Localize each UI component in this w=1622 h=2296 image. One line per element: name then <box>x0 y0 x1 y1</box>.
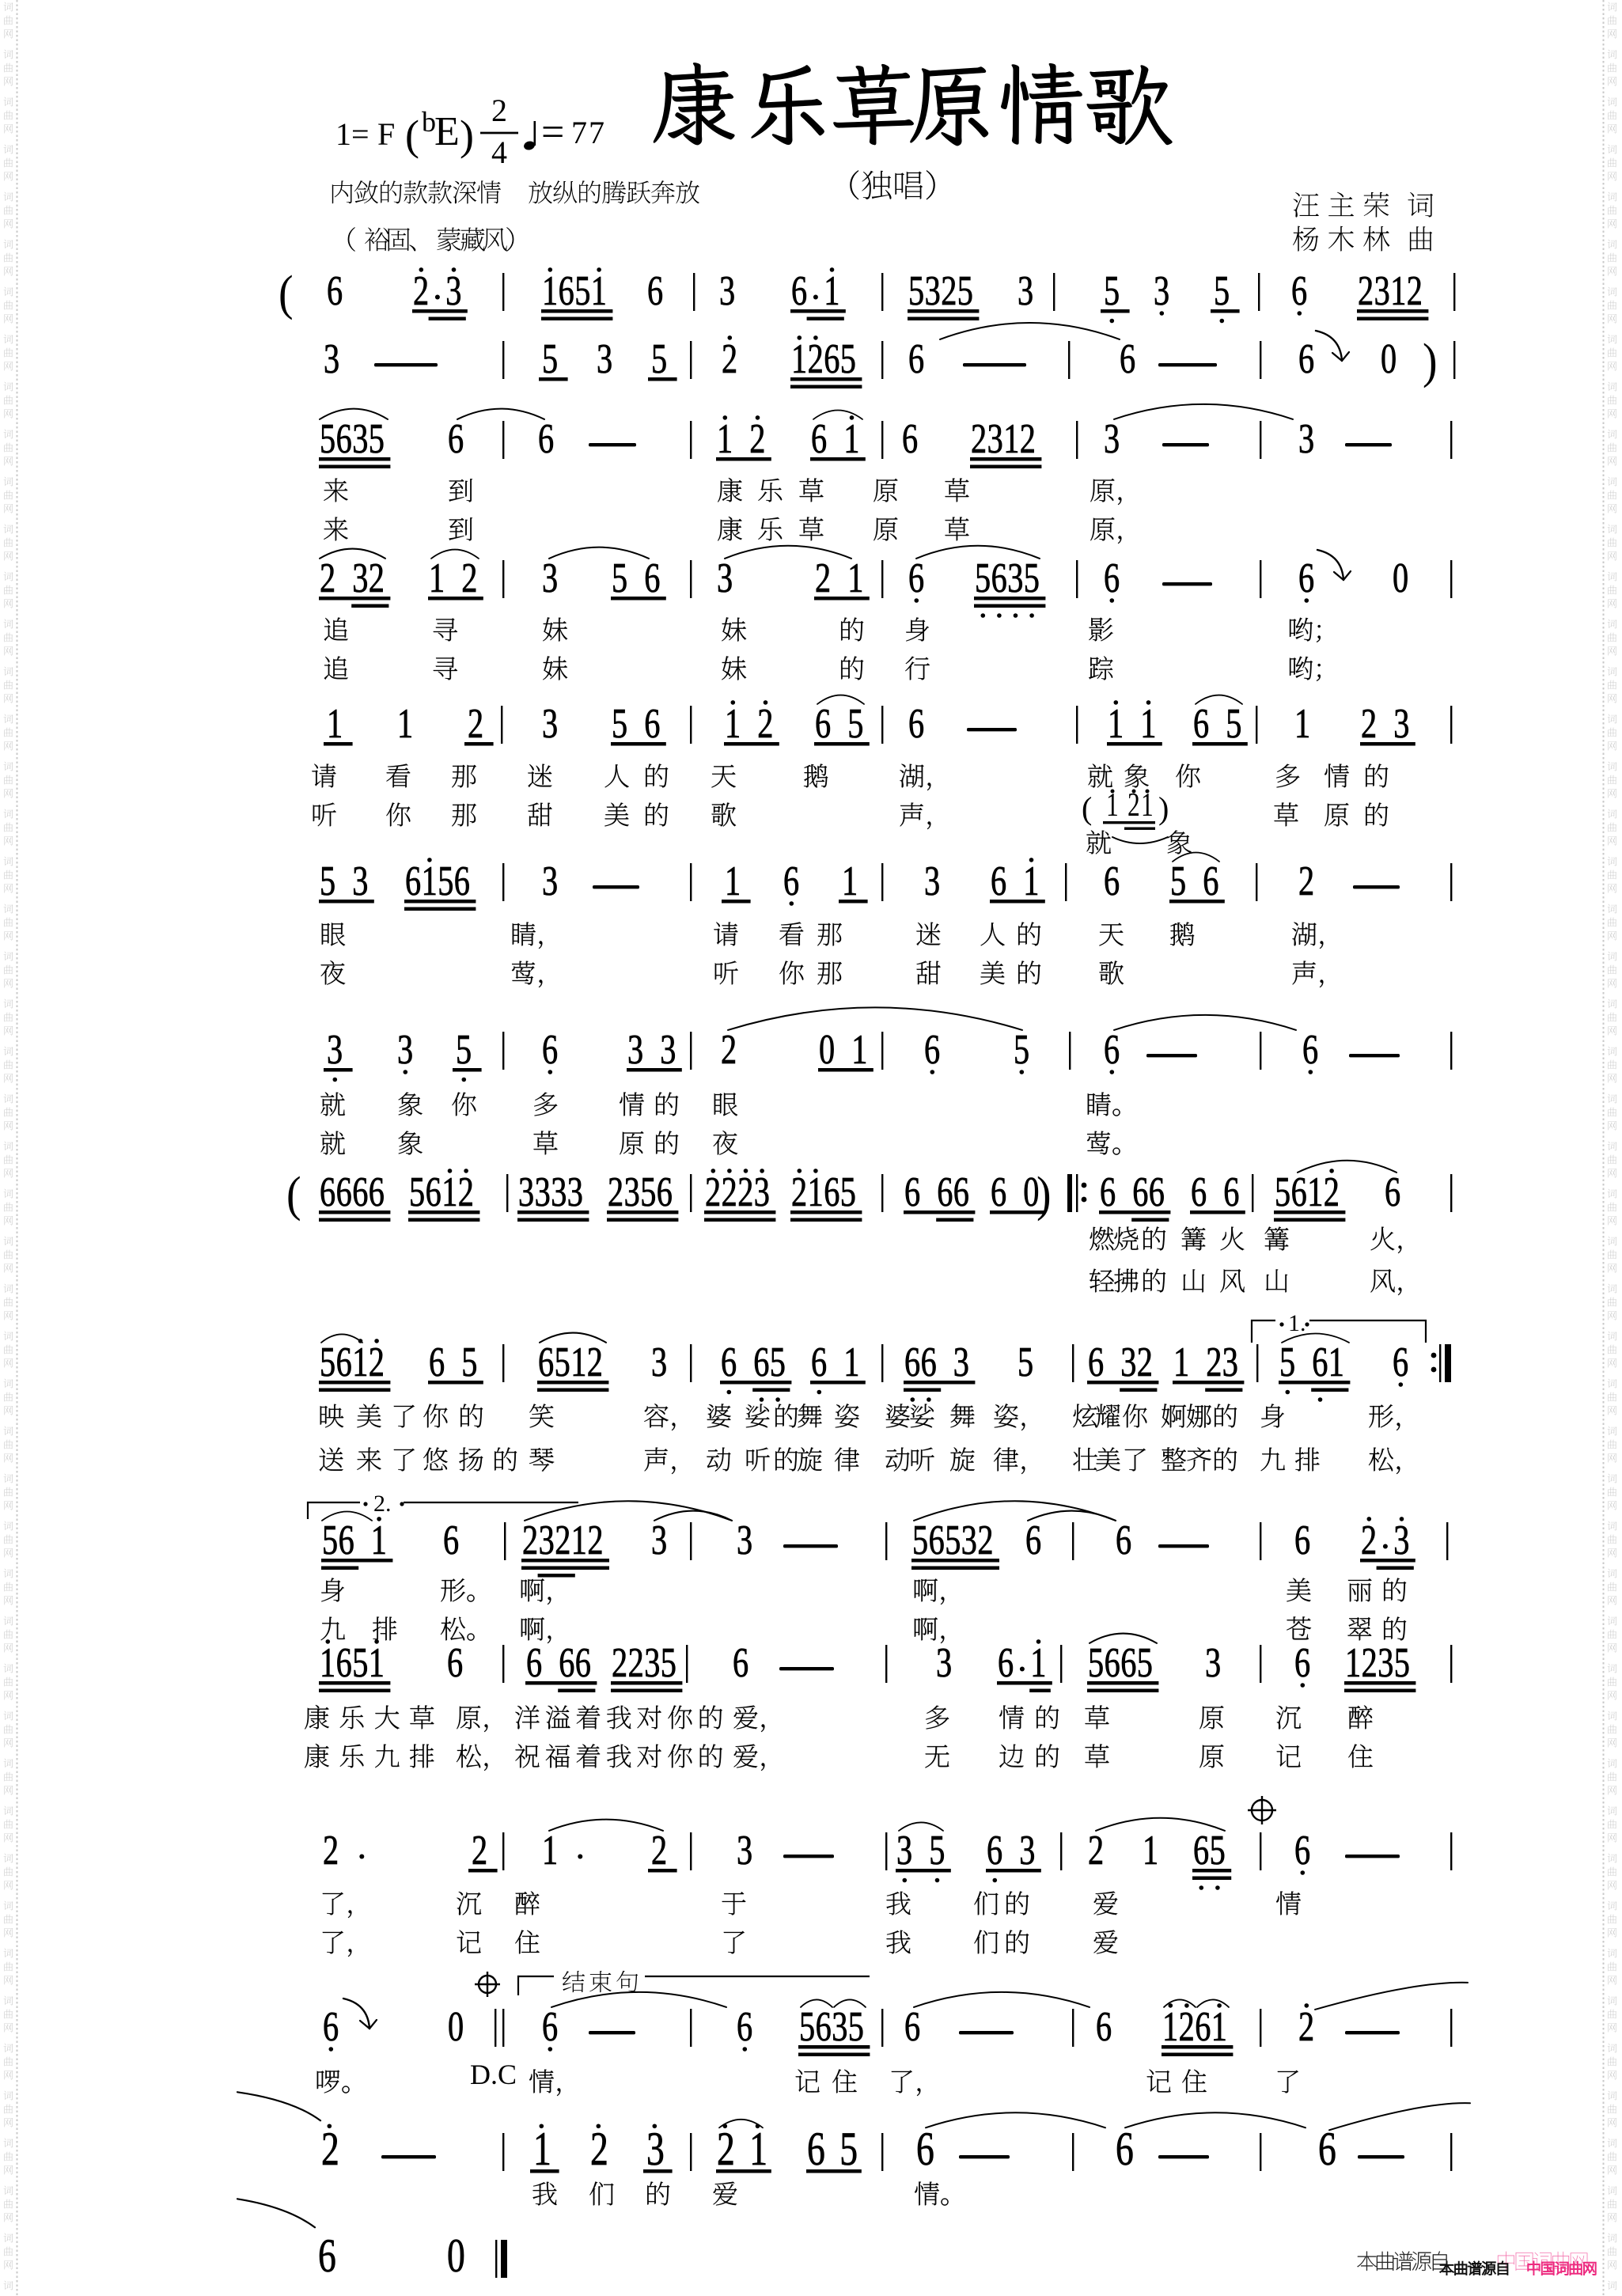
svg-text:6: 6 <box>904 2004 920 2051</box>
svg-text:2: 2 <box>1298 2004 1314 2051</box>
svg-text:3: 3 <box>535 1169 551 1216</box>
svg-text:(: ( <box>279 265 294 320</box>
svg-text:0: 0 <box>1381 336 1397 383</box>
svg-text:2: 2 <box>369 555 385 602</box>
svg-text:6: 6 <box>559 1640 574 1687</box>
svg-text:6: 6 <box>908 336 924 383</box>
svg-text:6: 6 <box>336 416 352 463</box>
svg-text:3: 3 <box>1154 268 1169 315</box>
svg-text:5: 5 <box>1018 1339 1033 1386</box>
svg-text:6: 6 <box>339 1517 354 1564</box>
svg-text:2: 2 <box>749 416 765 463</box>
svg-text:6: 6 <box>448 416 464 463</box>
svg-text:5: 5 <box>461 1339 477 1386</box>
svg-text:6: 6 <box>426 1169 442 1216</box>
svg-text:3: 3 <box>1205 1640 1221 1687</box>
svg-text:6: 6 <box>1294 1640 1310 1687</box>
svg-text:5: 5 <box>839 2123 858 2175</box>
svg-text:3: 3 <box>1374 268 1390 315</box>
svg-text:3: 3 <box>397 1027 413 1074</box>
svg-text:2: 2 <box>1088 1828 1104 1874</box>
svg-text:2: 2 <box>608 1169 623 1216</box>
svg-text:6: 6 <box>1312 1339 1328 1386</box>
svg-text:3: 3 <box>924 858 940 905</box>
svg-text:5: 5 <box>1014 1027 1029 1074</box>
svg-text:3: 3 <box>1298 416 1314 463</box>
svg-text:3: 3 <box>542 858 558 905</box>
svg-text:5: 5 <box>1275 1169 1290 1216</box>
svg-text:2: 2 <box>590 2123 608 2175</box>
svg-text:2: 2 <box>468 701 483 748</box>
svg-text:6: 6 <box>336 1640 352 1687</box>
svg-text:6: 6 <box>1302 1027 1318 1074</box>
svg-text:1: 1 <box>717 416 733 463</box>
svg-text:2: 2 <box>721 1027 737 1074</box>
svg-text:3: 3 <box>961 1517 977 1564</box>
svg-text:6: 6 <box>1318 2123 1336 2175</box>
svg-text:2: 2 <box>705 1169 721 1216</box>
svg-text:D.C: D.C <box>470 2059 517 2090</box>
svg-text:5: 5 <box>574 268 590 315</box>
svg-text:3: 3 <box>542 555 558 602</box>
svg-text:6: 6 <box>1104 1027 1120 1074</box>
svg-text:77: 77 <box>571 115 606 150</box>
svg-text:1: 1 <box>1023 858 1039 905</box>
svg-text:5: 5 <box>369 416 385 463</box>
svg-text:6: 6 <box>1291 1169 1307 1216</box>
svg-text:6: 6 <box>991 555 1007 602</box>
svg-text:0: 0 <box>447 2230 465 2282</box>
svg-text:5: 5 <box>1210 1828 1226 1874</box>
svg-text:3: 3 <box>1378 1640 1393 1687</box>
svg-text:5: 5 <box>542 336 558 383</box>
svg-text:6: 6 <box>575 1640 591 1687</box>
svg-text:3: 3 <box>896 1828 912 1874</box>
svg-text:1: 1 <box>1030 1640 1046 1687</box>
svg-text:6: 6 <box>1294 1517 1310 1564</box>
svg-text:6: 6 <box>921 1339 937 1386</box>
svg-text:3: 3 <box>936 1640 952 1687</box>
svg-text:5: 5 <box>1170 858 1186 905</box>
svg-text:2: 2 <box>1358 268 1374 315</box>
svg-text:2: 2 <box>815 555 831 602</box>
svg-text:3: 3 <box>1104 416 1120 463</box>
svg-text:5: 5 <box>320 416 335 463</box>
svg-text:3: 3 <box>445 268 461 315</box>
svg-text:6: 6 <box>721 1339 737 1386</box>
svg-text:1: 1 <box>591 268 607 315</box>
svg-text:6: 6 <box>783 858 799 905</box>
svg-text:2: 2 <box>1361 701 1377 748</box>
svg-text:1: 1 <box>1345 1640 1361 1687</box>
svg-text:1.: 1. <box>1288 1310 1306 1336</box>
svg-text:6: 6 <box>1385 1169 1400 1216</box>
svg-text:6: 6 <box>816 2004 832 2051</box>
svg-text:6: 6 <box>791 268 807 315</box>
svg-text:2: 2 <box>757 701 773 748</box>
svg-text:2: 2 <box>321 2123 339 2175</box>
svg-text:2: 2 <box>587 1339 603 1386</box>
svg-text:1: 1 <box>824 268 839 315</box>
svg-text:6: 6 <box>904 1169 920 1216</box>
svg-text:1: 1 <box>1173 1339 1189 1386</box>
svg-text:1: 1 <box>1328 1339 1344 1386</box>
svg-text:6: 6 <box>824 336 839 383</box>
svg-text:(: ( <box>1082 790 1092 826</box>
svg-text:3: 3 <box>719 268 735 315</box>
svg-text:3: 3 <box>987 416 1003 463</box>
svg-text:6: 6 <box>991 858 1006 905</box>
svg-text:6: 6 <box>998 1640 1014 1687</box>
svg-text:6: 6 <box>807 2123 825 2175</box>
svg-text:3: 3 <box>352 555 368 602</box>
svg-text:6: 6 <box>1294 1828 1310 1874</box>
svg-text:3: 3 <box>644 1640 660 1687</box>
svg-text:6: 6 <box>737 2004 752 2051</box>
svg-text:1=: 1= <box>335 116 369 152</box>
svg-text:1: 1 <box>352 1339 368 1386</box>
svg-text:1: 1 <box>542 268 558 315</box>
svg-text:5: 5 <box>612 555 627 602</box>
svg-text:2: 2 <box>737 1169 753 1216</box>
svg-text:2: 2 <box>522 1517 538 1564</box>
svg-text:1: 1 <box>1108 701 1124 748</box>
svg-text:1: 1 <box>791 336 807 383</box>
svg-text:3: 3 <box>327 1027 343 1074</box>
svg-text:2: 2 <box>491 93 507 128</box>
svg-text:1: 1 <box>542 1828 558 1874</box>
svg-text:2: 2 <box>461 555 477 602</box>
svg-text:5: 5 <box>1024 555 1040 602</box>
svg-text:6: 6 <box>538 416 554 463</box>
svg-text:(: ( <box>405 112 419 159</box>
svg-text:0: 0 <box>1393 555 1408 602</box>
svg-text:6: 6 <box>1132 1169 1148 1216</box>
svg-text:2: 2 <box>1362 1640 1378 1687</box>
svg-text:5: 5 <box>1394 1640 1410 1687</box>
svg-text:6: 6 <box>644 555 660 602</box>
svg-text:0: 0 <box>819 1027 835 1074</box>
svg-text:1: 1 <box>725 858 741 905</box>
svg-text:6: 6 <box>1120 336 1135 383</box>
svg-text:1: 1 <box>1294 701 1310 748</box>
svg-text:1: 1 <box>1003 416 1019 463</box>
svg-text:1: 1 <box>442 1169 457 1216</box>
svg-text:6: 6 <box>1223 1169 1239 1216</box>
svg-text:6: 6 <box>405 858 421 905</box>
svg-text:3: 3 <box>1393 1517 1409 1564</box>
svg-text:3: 3 <box>1018 268 1033 315</box>
svg-text:5: 5 <box>840 1169 856 1216</box>
svg-text:6: 6 <box>327 268 343 315</box>
svg-text:6: 6 <box>991 1169 1006 1216</box>
svg-text:6: 6 <box>1193 701 1209 748</box>
svg-text:6: 6 <box>1298 555 1314 602</box>
svg-text:6: 6 <box>908 701 924 748</box>
svg-text:2: 2 <box>941 268 957 315</box>
svg-text:0: 0 <box>448 2004 464 2051</box>
svg-text:5: 5 <box>320 858 335 905</box>
svg-text:3: 3 <box>754 1169 770 1216</box>
svg-text:6: 6 <box>1100 1169 1116 1216</box>
svg-text:6: 6 <box>657 1169 673 1216</box>
svg-text:6: 6 <box>902 416 918 463</box>
svg-text:2: 2 <box>323 1828 339 1874</box>
svg-text:2: 2 <box>369 1339 385 1386</box>
svg-text:2: 2 <box>1020 416 1036 463</box>
svg-text:6: 6 <box>815 701 831 748</box>
svg-text:6: 6 <box>336 1169 352 1216</box>
svg-text:3: 3 <box>1222 1339 1238 1386</box>
svg-text:3: 3 <box>1393 701 1409 748</box>
svg-text:2: 2 <box>1298 858 1314 905</box>
svg-text:6: 6 <box>929 1517 945 1564</box>
svg-text:2: 2 <box>320 555 335 602</box>
svg-text:6: 6 <box>1104 555 1120 602</box>
svg-text:6: 6 <box>1025 1517 1041 1564</box>
svg-text:): ) <box>1158 790 1169 826</box>
svg-text:6: 6 <box>924 1027 940 1074</box>
svg-text:5: 5 <box>409 1169 425 1216</box>
svg-text:6: 6 <box>1191 1169 1207 1216</box>
svg-text:6: 6 <box>647 268 663 315</box>
svg-text:1: 1 <box>843 1339 859 1386</box>
svg-text:=: = <box>541 110 564 155</box>
svg-text:3: 3 <box>737 1828 752 1874</box>
svg-text:5: 5 <box>770 1339 786 1386</box>
svg-text:2: 2 <box>472 1828 487 1874</box>
svg-text:2: 2 <box>651 1828 667 1874</box>
svg-text:3: 3 <box>518 1169 534 1216</box>
svg-text:2: 2 <box>1361 1517 1377 1564</box>
svg-text:3: 3 <box>324 336 339 383</box>
svg-text:5: 5 <box>352 1640 368 1687</box>
svg-text:5: 5 <box>661 1640 676 1687</box>
svg-text:F: F <box>377 116 395 152</box>
svg-text:3: 3 <box>832 2004 847 2051</box>
svg-text:1: 1 <box>429 555 445 602</box>
svg-text:3: 3 <box>542 701 558 748</box>
svg-text:): ) <box>460 112 474 159</box>
svg-text:2: 2 <box>977 1517 993 1564</box>
svg-text:2: 2 <box>587 1517 603 1564</box>
svg-text:1: 1 <box>1140 701 1156 748</box>
svg-text:3: 3 <box>1007 555 1023 602</box>
svg-text:6: 6 <box>320 1169 335 1216</box>
svg-text:5: 5 <box>929 1828 945 1874</box>
svg-text:6: 6 <box>559 268 574 315</box>
svg-text:2: 2 <box>717 2123 735 2175</box>
svg-text:6: 6 <box>733 1640 748 1687</box>
svg-text:2: 2 <box>1407 268 1423 315</box>
svg-text:5: 5 <box>1088 1640 1104 1687</box>
svg-text:3: 3 <box>651 1339 667 1386</box>
svg-text:5: 5 <box>1226 701 1241 748</box>
svg-text:1: 1 <box>851 1027 867 1074</box>
svg-text:2: 2 <box>628 1640 644 1687</box>
svg-text:6: 6 <box>542 2004 558 2051</box>
svg-text:5: 5 <box>1279 1339 1295 1386</box>
svg-text:3: 3 <box>717 555 733 602</box>
svg-text:1: 1 <box>371 1517 387 1564</box>
svg-text:3: 3 <box>539 1517 555 1564</box>
svg-text:4: 4 <box>491 135 507 170</box>
svg-text:6: 6 <box>1193 1828 1209 1874</box>
svg-text:3: 3 <box>1019 1828 1035 1874</box>
svg-text:3: 3 <box>953 1339 969 1386</box>
svg-text:3: 3 <box>660 1027 676 1074</box>
svg-text:2.: 2. <box>373 1491 392 1517</box>
svg-text:3: 3 <box>627 1027 643 1074</box>
svg-text:6: 6 <box>1120 1640 1136 1687</box>
svg-text:2: 2 <box>808 336 824 383</box>
svg-text:2: 2 <box>1179 2004 1195 2051</box>
svg-text:6: 6 <box>369 1169 385 1216</box>
svg-text:3: 3 <box>1120 1339 1136 1386</box>
svg-text:6: 6 <box>352 1169 368 1216</box>
svg-text:6: 6 <box>454 858 470 905</box>
svg-text:2: 2 <box>458 1169 474 1216</box>
svg-text:1: 1 <box>1390 268 1406 315</box>
svg-text:): ) <box>1036 1166 1052 1221</box>
svg-text:1: 1 <box>725 701 741 748</box>
svg-text:5: 5 <box>1104 268 1120 315</box>
svg-text:5: 5 <box>840 336 856 383</box>
svg-text:5: 5 <box>322 1517 338 1564</box>
svg-text:2: 2 <box>722 1169 737 1216</box>
svg-text:1: 1 <box>422 858 438 905</box>
svg-text:3: 3 <box>624 1169 640 1216</box>
svg-text:2: 2 <box>1206 1339 1222 1386</box>
svg-text:5: 5 <box>957 268 973 315</box>
svg-text:6: 6 <box>908 555 924 602</box>
svg-text:6: 6 <box>1104 858 1120 905</box>
svg-text:2: 2 <box>413 268 429 315</box>
svg-text:6: 6 <box>1116 2123 1134 2175</box>
svg-text:1: 1 <box>397 701 413 748</box>
svg-text:1: 1 <box>327 701 343 748</box>
svg-text:5: 5 <box>848 2004 864 2051</box>
svg-text:3: 3 <box>925 268 941 315</box>
svg-text:6: 6 <box>443 1517 459 1564</box>
svg-text:5: 5 <box>1214 268 1230 315</box>
svg-text:5: 5 <box>651 336 667 383</box>
svg-text:3: 3 <box>651 1517 667 1564</box>
svg-text:6: 6 <box>526 1640 542 1687</box>
svg-text:2: 2 <box>1324 1169 1340 1216</box>
svg-text:5: 5 <box>612 701 627 748</box>
svg-text:3: 3 <box>646 2123 665 2175</box>
svg-text:1: 1 <box>533 2123 551 2175</box>
svg-text:3: 3 <box>737 1517 752 1564</box>
svg-text:1: 1 <box>570 1339 586 1386</box>
svg-text:6: 6 <box>987 1828 1002 1874</box>
svg-text:6: 6 <box>447 1640 463 1687</box>
svg-text:2: 2 <box>971 416 987 463</box>
svg-text:6: 6 <box>1195 2004 1211 2051</box>
svg-text:6: 6 <box>1393 1339 1408 1386</box>
svg-text:1: 1 <box>843 416 859 463</box>
svg-text:3: 3 <box>551 1169 567 1216</box>
svg-text:6: 6 <box>904 1339 920 1386</box>
svg-text:(: ( <box>286 1166 301 1221</box>
svg-text:2: 2 <box>1137 1339 1153 1386</box>
svg-text:5: 5 <box>438 858 453 905</box>
svg-text:6: 6 <box>824 1169 839 1216</box>
svg-text:6: 6 <box>916 2123 934 2175</box>
svg-text:5: 5 <box>912 1517 928 1564</box>
svg-text:E: E <box>434 109 460 154</box>
svg-text:6: 6 <box>811 1339 827 1386</box>
svg-text:6: 6 <box>1149 1169 1165 1216</box>
svg-text:6: 6 <box>1105 1640 1120 1687</box>
svg-text:6: 6 <box>644 701 660 748</box>
svg-text:6: 6 <box>538 1339 554 1386</box>
svg-text:1: 1 <box>842 858 858 905</box>
svg-text:6: 6 <box>1096 2004 1112 2051</box>
svg-text:3: 3 <box>597 336 612 383</box>
svg-text:1: 1 <box>571 1517 587 1564</box>
svg-text:2: 2 <box>791 1169 807 1216</box>
svg-text:3: 3 <box>567 1169 583 1216</box>
svg-text:1: 1 <box>320 1640 335 1687</box>
svg-text:1: 1 <box>808 1169 824 1216</box>
svg-text:1: 1 <box>369 1640 385 1687</box>
svg-text:6: 6 <box>1298 336 1314 383</box>
svg-text:6: 6 <box>937 1169 953 1216</box>
svg-text:5: 5 <box>555 1339 570 1386</box>
svg-text:1: 1 <box>1162 2004 1178 2051</box>
svg-text:5: 5 <box>975 555 991 602</box>
svg-text:5: 5 <box>908 268 924 315</box>
svg-text:6: 6 <box>1291 268 1307 315</box>
svg-text:6: 6 <box>953 1169 969 1216</box>
svg-text:3: 3 <box>352 416 368 463</box>
svg-text:6: 6 <box>1088 1339 1104 1386</box>
svg-text:5: 5 <box>456 1027 472 1074</box>
svg-text:6: 6 <box>1116 1517 1131 1564</box>
svg-text:): ) <box>1423 333 1438 388</box>
svg-text:1: 1 <box>749 2123 767 2175</box>
svg-text:5: 5 <box>945 1517 961 1564</box>
svg-text:5: 5 <box>320 1339 335 1386</box>
svg-text:2: 2 <box>722 336 737 383</box>
svg-text:5: 5 <box>799 2004 815 2051</box>
svg-text:6: 6 <box>753 1339 769 1386</box>
svg-text:5: 5 <box>847 701 863 748</box>
svg-text:6: 6 <box>542 1027 558 1074</box>
svg-text:3: 3 <box>352 858 368 905</box>
svg-text:2: 2 <box>555 1517 570 1564</box>
svg-text:1: 1 <box>1143 1828 1158 1874</box>
svg-text:5: 5 <box>1137 1640 1153 1687</box>
svg-text:6: 6 <box>429 1339 445 1386</box>
svg-text:6: 6 <box>1203 858 1218 905</box>
svg-text:1: 1 <box>847 555 863 602</box>
svg-text:6: 6 <box>336 1339 352 1386</box>
svg-text:2: 2 <box>612 1640 627 1687</box>
svg-text:6: 6 <box>318 2230 336 2282</box>
svg-text:1: 1 <box>1307 1169 1323 1216</box>
svg-text:6: 6 <box>323 2004 339 2051</box>
svg-text:6: 6 <box>811 416 827 463</box>
svg-text:5: 5 <box>640 1169 656 1216</box>
svg-text:1: 1 <box>1211 2004 1227 2051</box>
